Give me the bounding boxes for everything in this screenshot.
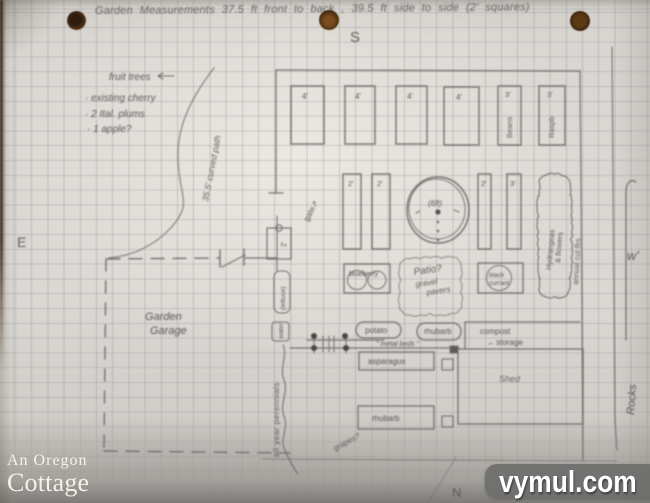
svg-text:grapes?: grapes? (332, 431, 362, 453)
svg-text:blueberry: blueberry (349, 271, 379, 278)
svg-text:Garden Measurements 37.5 ft f: Garden Measurements 37.5 ft front to bac… (95, 1, 530, 17)
svg-text:4': 4' (407, 92, 413, 101)
svg-text:& flowers: & flowers (553, 231, 565, 263)
svg-text:Shed: Shed (499, 374, 521, 384)
svg-text:4': 4' (456, 93, 462, 102)
svg-text:Garage: Garage (150, 325, 187, 337)
svg-text:3': 3' (510, 179, 516, 188)
svg-text:w': w' (627, 248, 639, 263)
svg-text:· 2 Ital. plums: · 2 Ital. plums (85, 109, 145, 120)
svg-text:gate↗: gate↗ (302, 199, 320, 223)
svg-text:· existing cherry: · existing cherry (85, 93, 157, 104)
svg-text:rhubarb: rhubarb (372, 414, 400, 423)
svg-text:rhubarb: rhubarb (424, 327, 452, 336)
svg-text:black: black (489, 272, 505, 279)
svg-text:S: S (350, 29, 360, 46)
svg-text:annual cut flrs: annual cut flrs (571, 238, 582, 285)
svg-text:2': 2' (281, 242, 288, 247)
svg-text:4': 4' (355, 92, 361, 101)
svg-text:Garden: Garden (145, 311, 182, 323)
svg-text:Beans: Beans (505, 116, 514, 138)
svg-text:fruit trees: fruit trees (109, 72, 151, 83)
svg-text:(6ft): (6ft) (428, 199, 443, 208)
svg-text:3': 3' (547, 90, 553, 99)
svg-text:E: E (17, 234, 26, 250)
svg-text:Raspb: Raspb (547, 116, 556, 138)
svg-text:asparagus: asparagus (368, 357, 405, 366)
svg-text:· 1 apple?: · 1 apple? (87, 124, 132, 135)
svg-text:compost: compost (480, 327, 511, 336)
svg-text:4': 4' (302, 92, 308, 101)
svg-text:N: N (452, 485, 461, 500)
svg-text:35.5' curved path: 35.5' curved path (200, 134, 223, 202)
svg-text:all year perennials: all year perennials (271, 382, 281, 457)
svg-text:2': 2' (481, 179, 487, 188)
svg-text:Patio?: Patio? (413, 263, 443, 278)
svg-text:Rocks: Rocks (625, 383, 639, 415)
svg-text:potato: potato (365, 326, 388, 335)
svg-text:water: water (278, 322, 285, 340)
svg-text:2': 2' (348, 179, 354, 188)
svg-text:2': 2' (377, 179, 383, 188)
svg-text:3': 3' (505, 90, 511, 99)
svg-text:→ storage: → storage (486, 338, 523, 347)
svg-text:" metal beds ": " metal beds " (376, 341, 420, 348)
svg-text:(lettuce): (lettuce) (280, 287, 287, 310)
svg-text:currant: currant (489, 280, 509, 287)
